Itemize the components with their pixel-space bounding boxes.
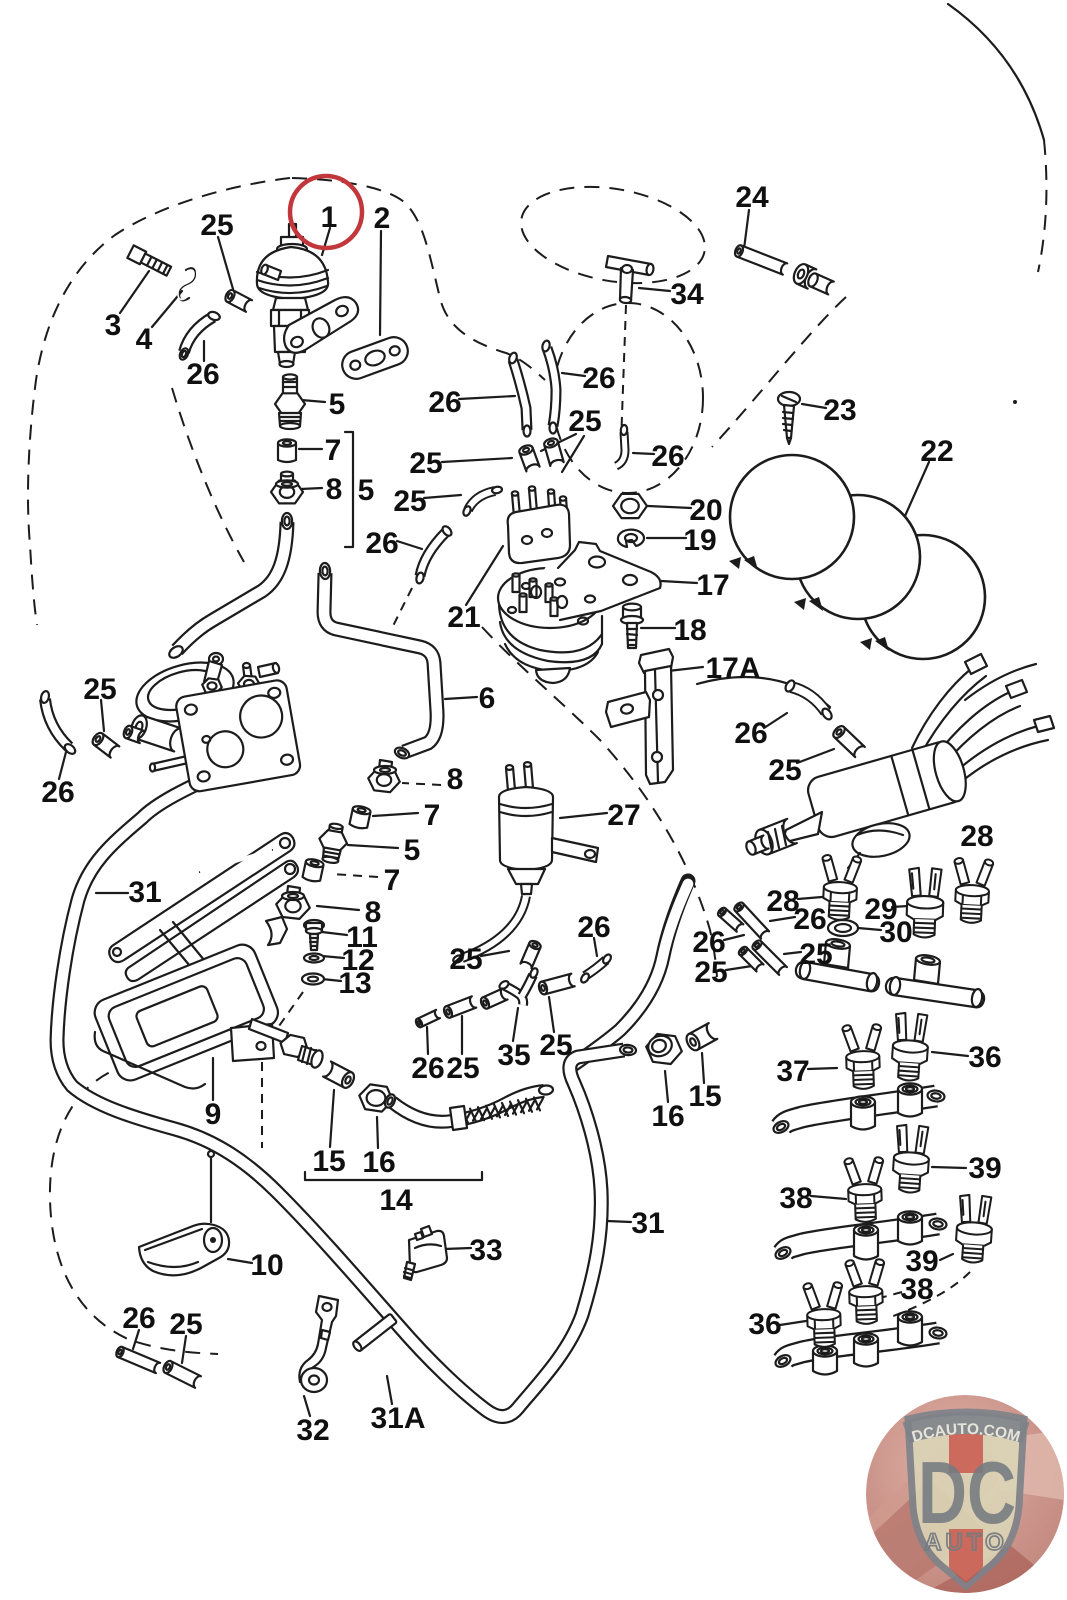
- svg-text:35: 35: [497, 1039, 530, 1072]
- svg-text:26: 26: [577, 911, 610, 944]
- svg-text:26: 26: [428, 386, 461, 419]
- svg-text:24: 24: [735, 181, 769, 214]
- svg-text:25: 25: [568, 405, 601, 438]
- svg-text:25: 25: [539, 1029, 572, 1062]
- svg-text:8: 8: [326, 473, 343, 506]
- svg-text:28: 28: [960, 820, 993, 853]
- svg-text:25: 25: [446, 1052, 479, 1085]
- svg-text:26: 26: [41, 776, 74, 809]
- svg-text:16: 16: [362, 1146, 395, 1179]
- svg-text:DC: DC: [918, 1443, 1016, 1542]
- svg-text:25: 25: [449, 943, 482, 976]
- svg-text:20: 20: [689, 494, 722, 527]
- svg-text:31: 31: [631, 1207, 664, 1240]
- svg-text:26: 26: [186, 358, 219, 391]
- svg-text:25: 25: [83, 673, 116, 706]
- svg-text:7: 7: [325, 434, 342, 467]
- svg-text:38: 38: [779, 1182, 812, 1215]
- svg-text:26: 26: [734, 717, 767, 750]
- svg-text:37: 37: [776, 1055, 809, 1088]
- svg-text:22: 22: [920, 435, 953, 468]
- svg-text:26: 26: [793, 903, 826, 936]
- svg-text:38: 38: [900, 1273, 933, 1306]
- svg-text:7: 7: [424, 799, 441, 832]
- svg-text:36: 36: [748, 1308, 781, 1341]
- svg-text:25: 25: [200, 209, 233, 242]
- svg-text:32: 32: [296, 1414, 329, 1447]
- svg-text:26: 26: [411, 1052, 444, 1085]
- svg-text:5: 5: [358, 474, 375, 507]
- svg-text:25: 25: [694, 956, 727, 989]
- svg-text:13: 13: [338, 967, 371, 1000]
- svg-text:26: 26: [122, 1302, 155, 1335]
- svg-text:3: 3: [105, 309, 122, 342]
- svg-text:AUTO: AUTO: [924, 1529, 1008, 1556]
- svg-text:10: 10: [250, 1249, 283, 1282]
- svg-text:14: 14: [379, 1184, 413, 1217]
- svg-text:21: 21: [447, 601, 480, 634]
- svg-text:1: 1: [321, 201, 338, 234]
- svg-text:17: 17: [696, 569, 729, 602]
- svg-text:7: 7: [384, 864, 401, 897]
- svg-text:23: 23: [823, 394, 856, 427]
- svg-text:17A: 17A: [705, 652, 760, 685]
- svg-text:25: 25: [799, 938, 832, 971]
- svg-text:5: 5: [329, 388, 346, 421]
- svg-text:30: 30: [879, 916, 912, 949]
- svg-text:25: 25: [409, 447, 442, 480]
- svg-text:26: 26: [365, 527, 398, 560]
- svg-text:19: 19: [683, 524, 716, 557]
- svg-text:33: 33: [469, 1234, 502, 1267]
- svg-text:27: 27: [607, 799, 640, 832]
- svg-text:2: 2: [374, 202, 391, 235]
- svg-text:16: 16: [651, 1100, 684, 1133]
- svg-text:8: 8: [447, 763, 464, 796]
- svg-text:26: 26: [692, 926, 725, 959]
- svg-text:6: 6: [479, 682, 496, 715]
- svg-text:31A: 31A: [370, 1402, 425, 1435]
- svg-text:15: 15: [688, 1080, 721, 1113]
- svg-text:34: 34: [670, 278, 704, 311]
- svg-text:4: 4: [136, 323, 153, 356]
- svg-text:15: 15: [312, 1145, 345, 1178]
- svg-text:26: 26: [582, 362, 615, 395]
- svg-text:39: 39: [968, 1152, 1001, 1185]
- svg-text:18: 18: [673, 614, 706, 647]
- svg-text:36: 36: [968, 1041, 1001, 1074]
- svg-text:31: 31: [128, 876, 161, 909]
- svg-text:26: 26: [651, 440, 684, 473]
- svg-text:5: 5: [404, 834, 421, 867]
- svg-text:25: 25: [768, 754, 801, 787]
- svg-text:9: 9: [205, 1098, 222, 1131]
- svg-text:25: 25: [393, 485, 426, 518]
- svg-text:25: 25: [169, 1308, 202, 1341]
